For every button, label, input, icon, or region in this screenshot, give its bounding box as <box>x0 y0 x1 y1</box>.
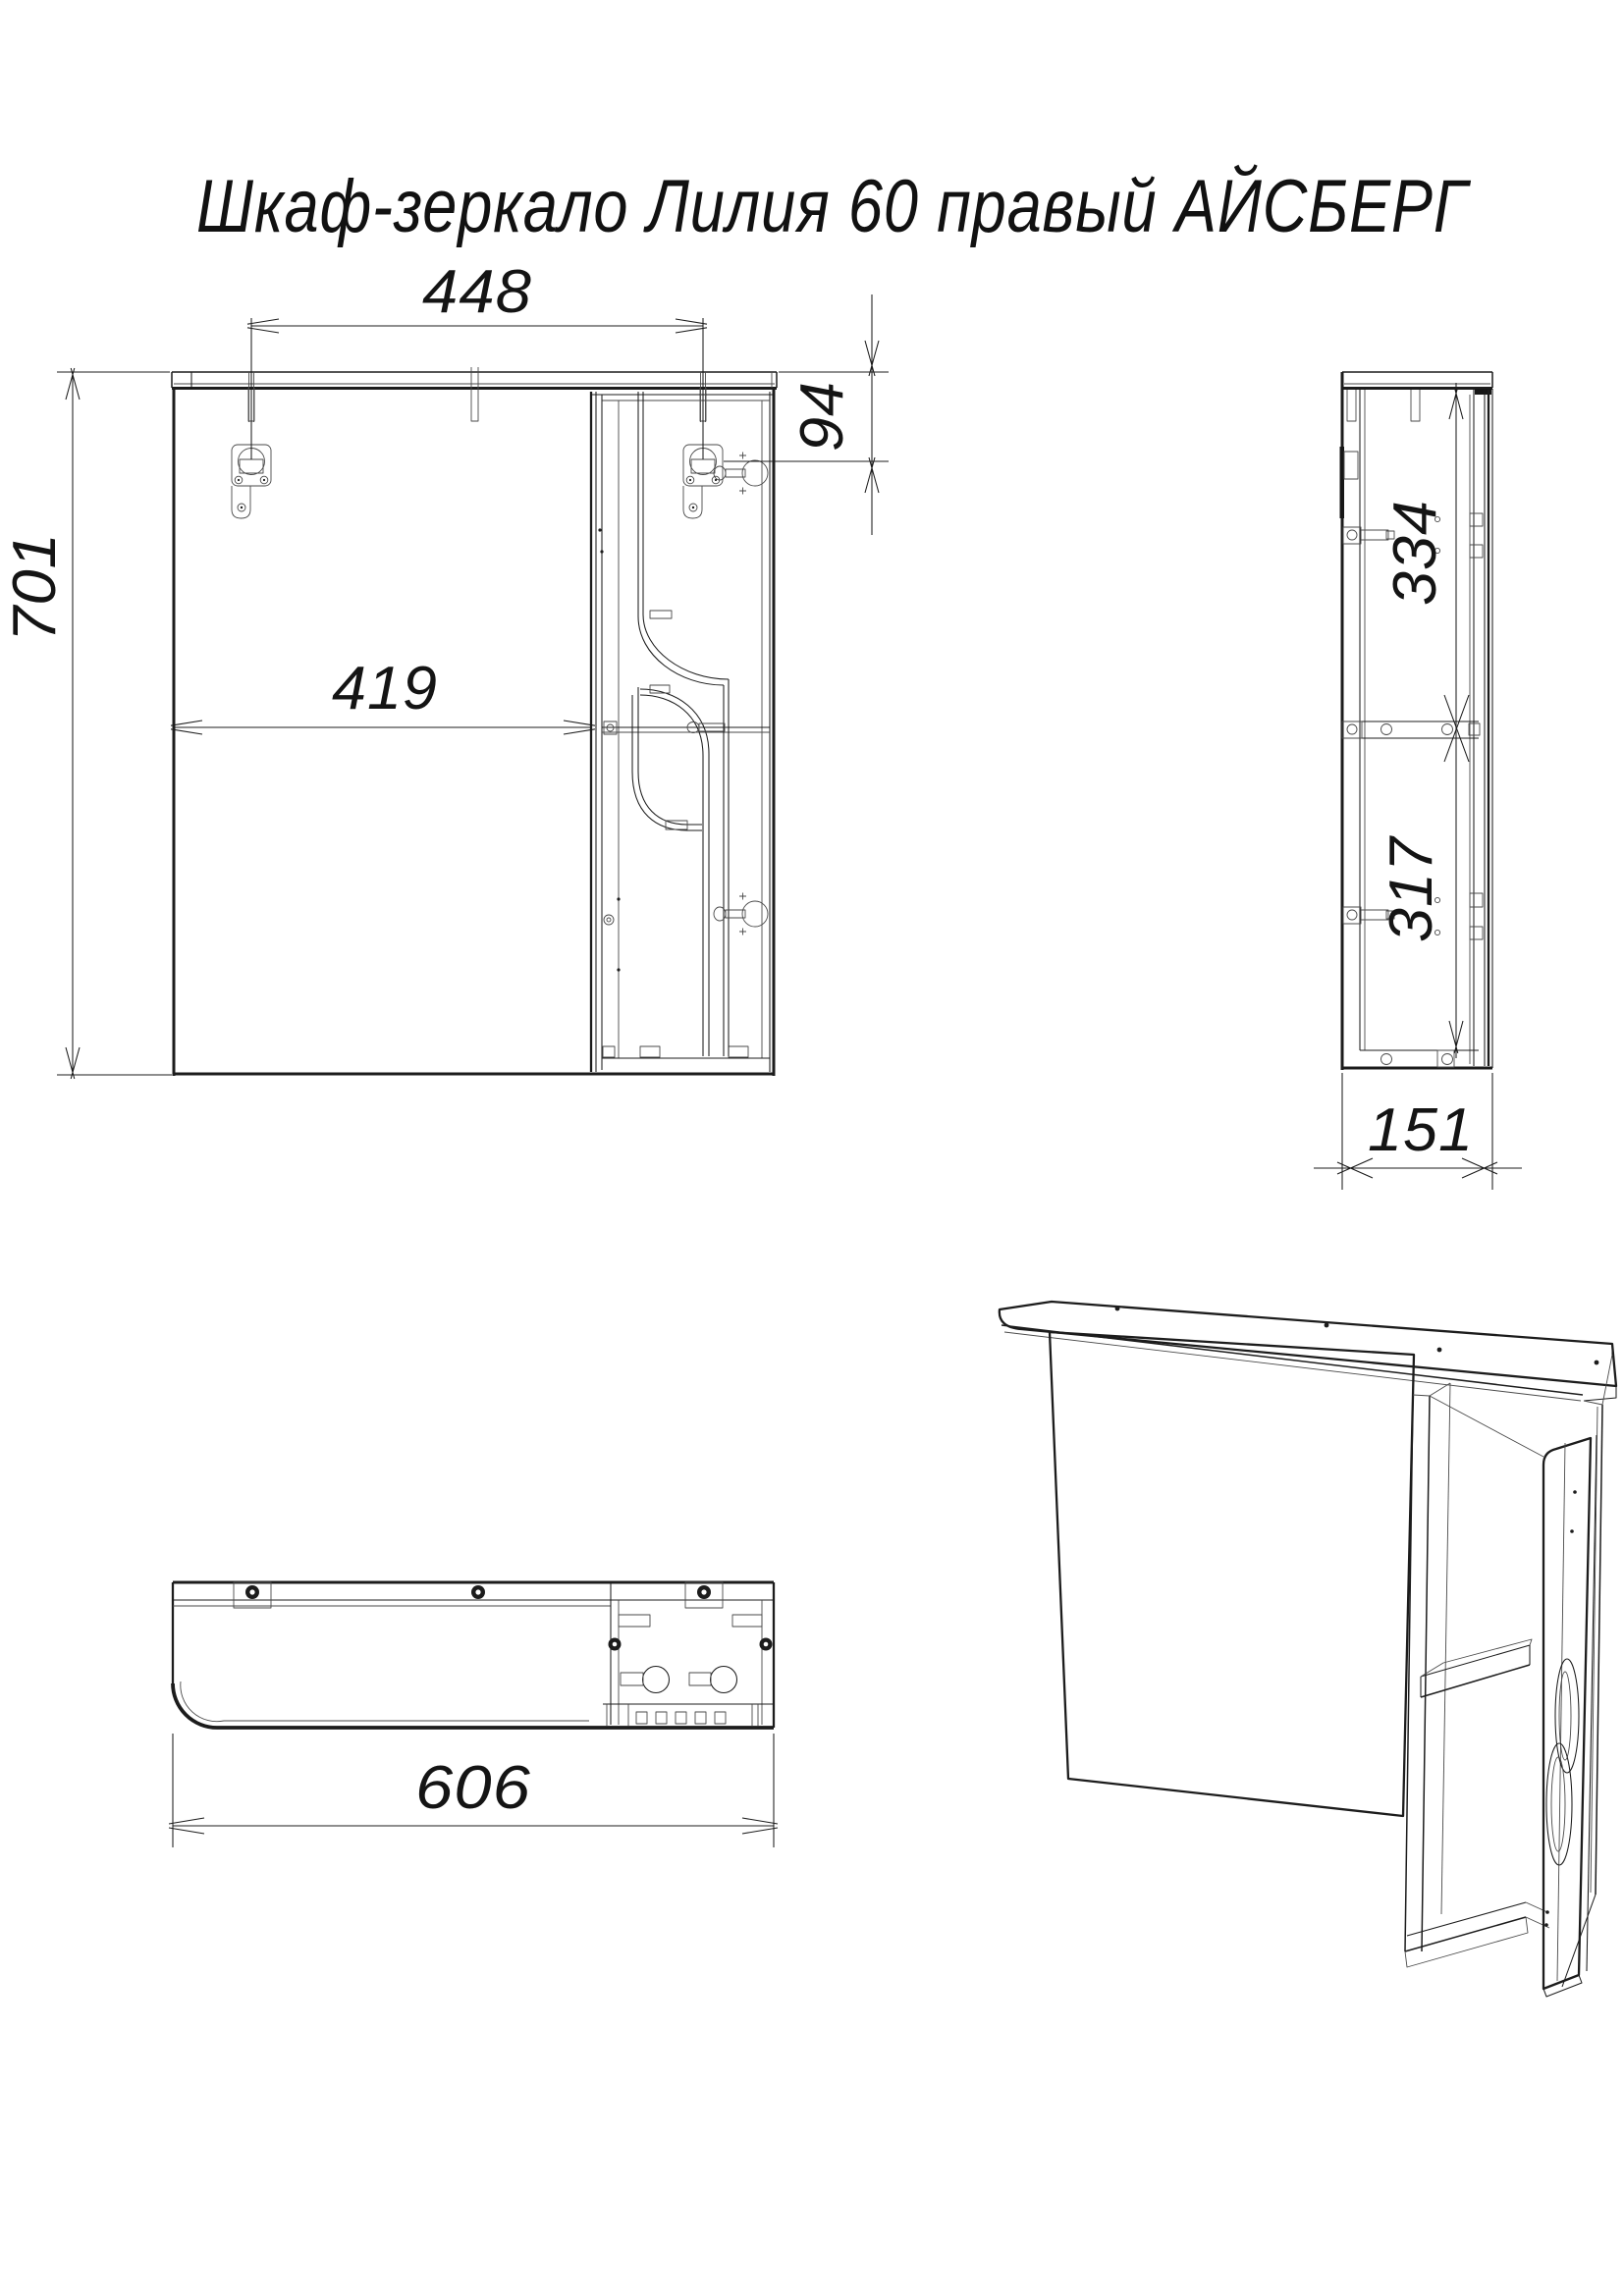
middle-shelf <box>1421 1639 1532 1697</box>
dim-lower-section: 317 <box>1378 834 1463 1053</box>
cam-fittings <box>598 453 768 972</box>
dim-mount-offset: 94 <box>724 294 889 535</box>
bottom-shelf <box>1405 1902 1549 1967</box>
technical-drawing-canvas: Шкаф-зеркало Лилия 60 правый АЙСБЕРГ <box>0 0 1624 2296</box>
dim-151-text: 151 <box>1368 1096 1474 1164</box>
side-view: 334 317 151 <box>1314 372 1522 1190</box>
dim-419-text: 419 <box>332 655 438 722</box>
dim-overall-width: 606 <box>169 1734 778 1847</box>
lamp-wiring <box>632 392 729 1056</box>
back-rail-screws <box>245 1585 711 1599</box>
dim-overall-height: 701 <box>1 368 172 1079</box>
bottom-fittings <box>603 1615 774 1726</box>
dim-317-text: 317 <box>1378 834 1445 942</box>
perspective-view <box>1000 1302 1616 1997</box>
front-view: 448 94 701 419 <box>1 258 889 1079</box>
title-text: Шкаф-зеркало Лилия 60 правый АЙСБЕРГ <box>196 164 1472 248</box>
mirror-panel <box>1050 1332 1414 1816</box>
drawing-title: Шкаф-зеркало Лилия 60 правый АЙСБЕРГ <box>196 164 1472 248</box>
dim-334-text: 334 <box>1381 500 1449 606</box>
drawing-sheet: Шкаф-зеркало Лилия 60 правый АЙСБЕРГ <box>0 0 1624 2296</box>
dim-depth: 151 <box>1314 1073 1522 1190</box>
dim-606-text: 606 <box>415 1754 531 1822</box>
bottom-view: 606 <box>169 1582 778 1847</box>
dim-94-text: 94 <box>788 381 856 452</box>
dim-door-width: 419 <box>171 655 595 734</box>
dim-701-text: 701 <box>1 532 69 642</box>
dim-upper-section: 334 <box>1381 383 1469 1058</box>
dim-448-text: 448 <box>422 258 532 326</box>
